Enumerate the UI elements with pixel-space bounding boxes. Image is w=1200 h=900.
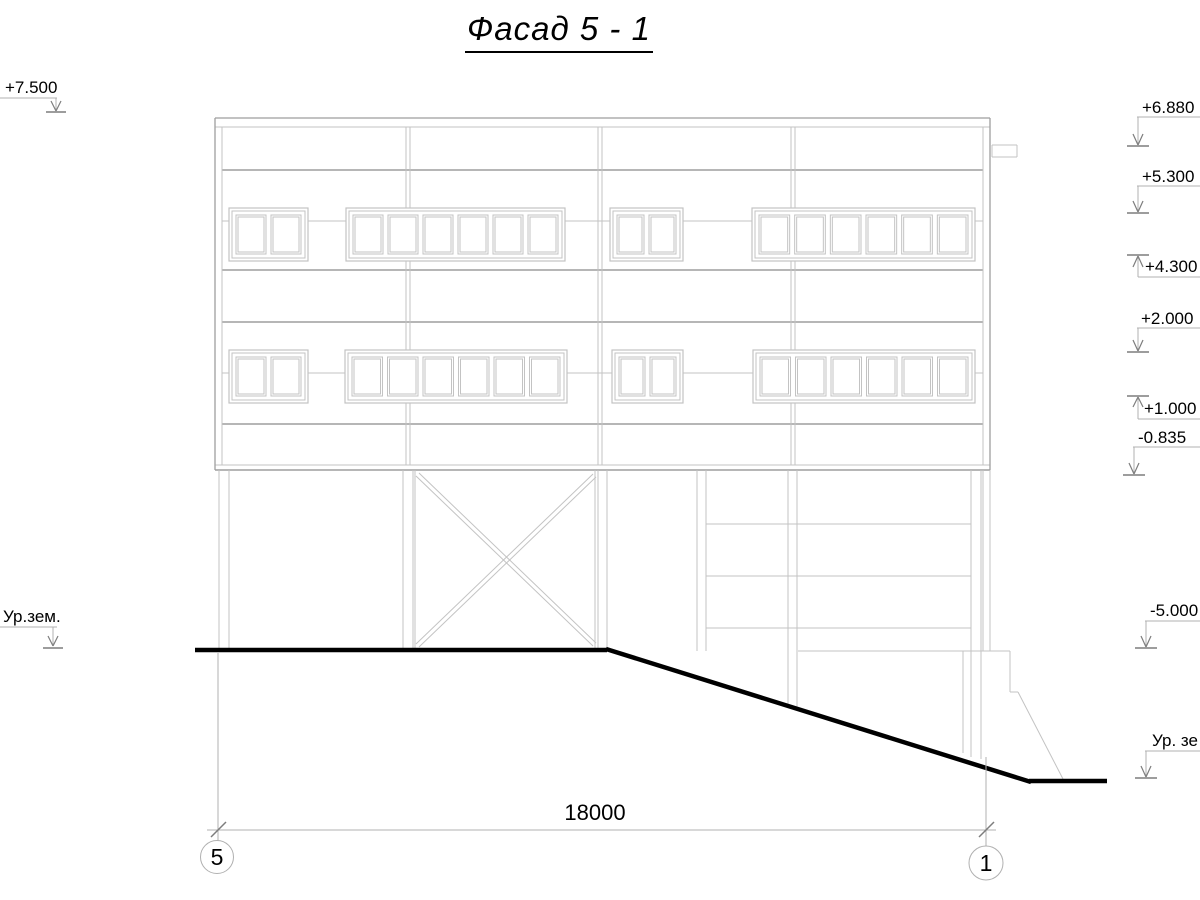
window-pane-glass — [621, 359, 643, 394]
window-outer-frame — [229, 208, 308, 261]
window-pane — [759, 215, 790, 254]
window-outer-frame — [229, 350, 308, 403]
window-pane — [650, 357, 676, 396]
window-pane-glass — [619, 217, 642, 252]
window-pane — [796, 357, 827, 396]
window-pane — [866, 215, 897, 254]
window-pane — [617, 215, 644, 254]
structure-line — [419, 477, 596, 647]
ground-lines — [195, 649, 1107, 782]
window-pane-glass — [940, 359, 967, 394]
window-pane-glass — [939, 217, 966, 252]
window-pane-glass — [869, 359, 896, 394]
elevation-label: +2.000 — [1141, 309, 1193, 328]
window-outer-frame — [610, 208, 683, 261]
window-pane-glass — [832, 217, 859, 252]
elevation-leader-line — [1138, 340, 1143, 351]
axis-number: 1 — [980, 850, 993, 876]
window-pane-glass — [762, 359, 789, 394]
elevation-label: +6.880 — [1142, 98, 1194, 117]
elevation-leader-line — [1133, 134, 1138, 145]
elevation-leader-line — [1129, 463, 1134, 474]
elevation-leader-line — [1133, 397, 1138, 407]
elevation-label: -0.835 — [1138, 428, 1186, 447]
window-pane — [459, 357, 490, 396]
window-pane-glass — [761, 217, 788, 252]
window-pane-glass — [390, 217, 416, 252]
window-pane — [530, 357, 561, 396]
window-pane-glass — [460, 217, 486, 252]
elevation-label: Ур. зе — [1152, 731, 1198, 750]
window-pane-glass — [496, 359, 523, 394]
window-pane-glass — [651, 217, 674, 252]
window-pane — [830, 215, 861, 254]
elevation-leader-line — [1133, 256, 1138, 267]
structure-line — [416, 474, 593, 644]
window-pane — [902, 357, 933, 396]
elevation-label: +1.000 — [1144, 399, 1196, 418]
elevation-leader-line — [1138, 397, 1143, 407]
window-inner-frame — [232, 211, 305, 258]
window-pane-glass — [354, 359, 381, 394]
window-outer-frame — [752, 208, 975, 261]
structure-line — [1018, 692, 1063, 779]
elevation-label: +4.300 — [1145, 257, 1197, 276]
window-pane — [831, 357, 862, 396]
window-pane — [423, 215, 453, 254]
window-pane — [902, 215, 933, 254]
window-pane — [494, 357, 525, 396]
window-inner-frame — [613, 211, 680, 258]
window-pane — [423, 357, 454, 396]
elevation-leader-line — [1138, 256, 1143, 267]
window-pane — [795, 215, 826, 254]
window-pane — [353, 215, 383, 254]
window-pane — [236, 215, 266, 254]
window-pane — [619, 357, 645, 396]
elevation-leader-line — [1146, 636, 1151, 647]
window-outer-frame — [753, 350, 975, 403]
window-inner-frame — [615, 353, 680, 400]
elevation-label: -5.000 — [1150, 601, 1198, 620]
window — [346, 208, 565, 261]
window-outer-frame — [345, 350, 567, 403]
window-pane — [937, 215, 968, 254]
window-pane-glass — [425, 359, 452, 394]
window-pane — [352, 357, 383, 396]
window — [753, 350, 975, 403]
window-outer-frame — [346, 208, 565, 261]
facade-drawing: +7.500Ур.зем.+6.880+5.300+4.300+2.000+1.… — [0, 0, 1200, 900]
elevation-leader-line — [1138, 134, 1143, 145]
window-inner-frame — [232, 353, 305, 400]
elevation-leader-line — [56, 101, 61, 111]
window-pane-glass — [833, 359, 860, 394]
window-pane-glass — [390, 359, 417, 394]
elevation-leader-line — [1141, 636, 1146, 647]
elevation-leader-line — [1133, 201, 1138, 212]
elevation-leader-line — [1141, 766, 1146, 777]
window-pane — [271, 215, 301, 254]
axis-bubbles: 51 — [201, 841, 1004, 881]
axis-bubble: 5 — [201, 841, 234, 874]
window-pane — [493, 215, 523, 254]
window-pane — [458, 215, 488, 254]
window-pane-glass — [904, 359, 931, 394]
window — [612, 350, 683, 403]
elevation-marks: +7.500Ур.зем.+6.880+5.300+4.300+2.000+1.… — [0, 78, 1200, 778]
window-pane-glass — [273, 359, 299, 394]
window-pane-glass — [495, 217, 521, 252]
window-pane-glass — [904, 217, 931, 252]
window-pane-glass — [797, 217, 824, 252]
elevation-leader-line — [48, 636, 53, 646]
window-pane — [388, 357, 419, 396]
window — [610, 208, 683, 261]
window-pane — [528, 215, 558, 254]
elevation-leader-line — [1138, 201, 1143, 212]
window-pane-glass — [532, 359, 559, 394]
window-pane-glass — [530, 217, 556, 252]
elevation-label: Ур.зем. — [3, 607, 61, 626]
window-pane-glass — [355, 217, 381, 252]
axis-number: 5 — [211, 844, 224, 870]
window-pane — [388, 215, 418, 254]
window-pane-glass — [798, 359, 825, 394]
elevation-label: +7.500 — [5, 78, 57, 97]
window-pane — [236, 357, 266, 396]
window-pane — [867, 357, 898, 396]
window-pane — [938, 357, 969, 396]
window-pane-glass — [652, 359, 674, 394]
window-pane — [649, 215, 676, 254]
elevation-leader-line — [1133, 340, 1138, 351]
elevation-leader-line — [53, 636, 58, 646]
window-pane — [271, 357, 301, 396]
pilotis-structure — [219, 470, 1063, 779]
elevation-leader-line — [1134, 463, 1139, 474]
building-outline — [215, 118, 1017, 470]
window-pane-glass — [273, 217, 299, 252]
window — [345, 350, 567, 403]
axis-bubble: 1 — [969, 846, 1003, 880]
window-pane-glass — [425, 217, 451, 252]
window-pane-glass — [461, 359, 488, 394]
window-pane-glass — [868, 217, 895, 252]
dimension-value: 18000 — [564, 800, 625, 825]
structure-line — [416, 476, 593, 646]
elevation-leader-line — [51, 101, 56, 111]
window-outer-frame — [612, 350, 683, 403]
window-pane — [760, 357, 791, 396]
window — [229, 208, 308, 261]
structure-line — [419, 473, 596, 643]
window — [752, 208, 975, 261]
window-pane-glass — [238, 217, 264, 252]
facade-elevation-sheet: Фасад 5 - 1 +7.500Ур.зем.+6.880+5.300+4.… — [0, 0, 1200, 900]
window — [229, 350, 308, 403]
ground-line — [606, 649, 1031, 782]
elevation-label: +5.300 — [1142, 167, 1194, 186]
dimension: 18000 — [207, 653, 996, 847]
window-pane-glass — [238, 359, 264, 394]
elevation-leader-line — [1146, 766, 1151, 777]
